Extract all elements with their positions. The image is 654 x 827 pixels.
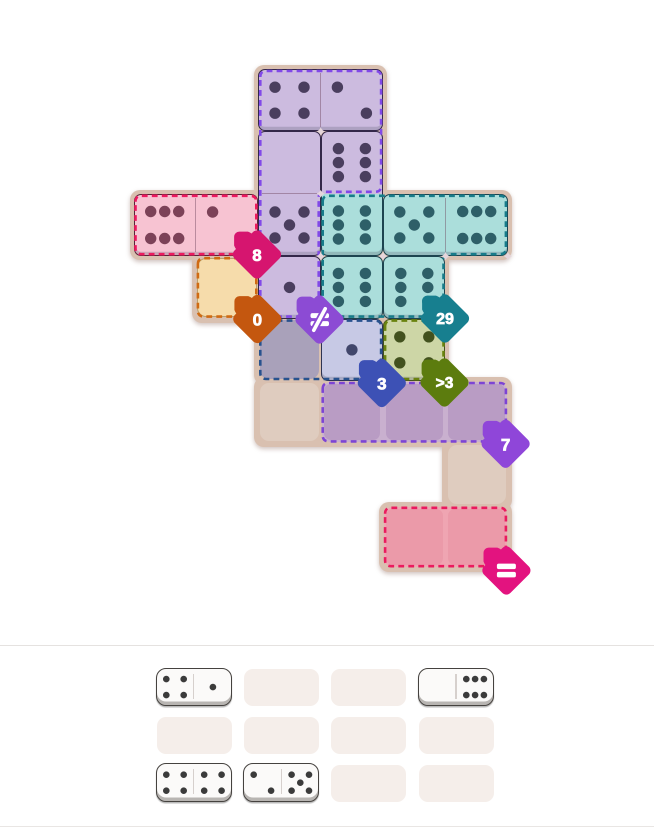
svg-text:29: 29 — [436, 311, 454, 328]
svg-text:3: 3 — [377, 375, 386, 394]
svg-text:7: 7 — [501, 435, 510, 454]
svg-text:8: 8 — [252, 246, 261, 265]
svg-text:>3: >3 — [436, 375, 454, 392]
svg-text:0: 0 — [253, 311, 262, 330]
